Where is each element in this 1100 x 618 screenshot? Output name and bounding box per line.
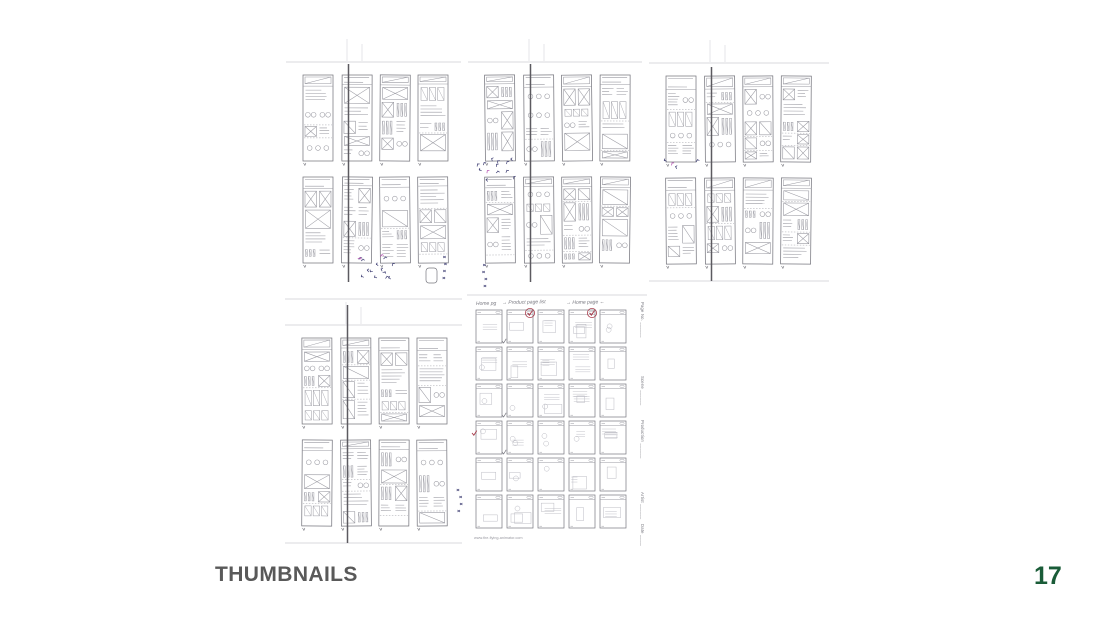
svg-text:→ Product page list: → Product page list	[502, 299, 546, 306]
svg-text:Home pg: Home pg	[476, 301, 497, 307]
sketch-sheet-3	[648, 31, 831, 291]
svg-text:Date ______: Date ______	[640, 524, 645, 546]
sketch-sheet-4-drawing	[284, 293, 464, 553]
slide: Home pg→ Product page list→ Home page ←P…	[0, 0, 1100, 618]
svg-text:Artist ______: Artist ______	[640, 492, 645, 520]
sketch-sheet-1	[285, 30, 463, 292]
sketch-sheet-4	[284, 293, 464, 553]
sketch-sheet-5-storyboard: Home pg→ Product page list→ Home page ←P…	[466, 288, 649, 546]
sketch-sheet-3-drawing	[648, 31, 831, 291]
sketch-sheet-2	[467, 30, 644, 292]
sketch-sheet-1-drawing	[285, 30, 463, 292]
svg-text:www.the-flying-animator.com: www.the-flying-animator.com	[474, 536, 523, 540]
page-number: 17	[1034, 562, 1062, 591]
svg-text:Page No. ______: Page No. ______	[640, 302, 645, 338]
slide-title: THUMBNAILS	[215, 563, 358, 587]
sketch-sheet-2-drawing	[467, 30, 644, 292]
svg-text:Scene ______: Scene ______	[640, 376, 645, 406]
svg-text:Production ______: Production ______	[640, 420, 645, 459]
svg-text:→ Home page ←: → Home page ←	[566, 299, 605, 306]
sketch-sheet-5-drawing: Home pg→ Product page list→ Home page ←P…	[466, 288, 649, 546]
